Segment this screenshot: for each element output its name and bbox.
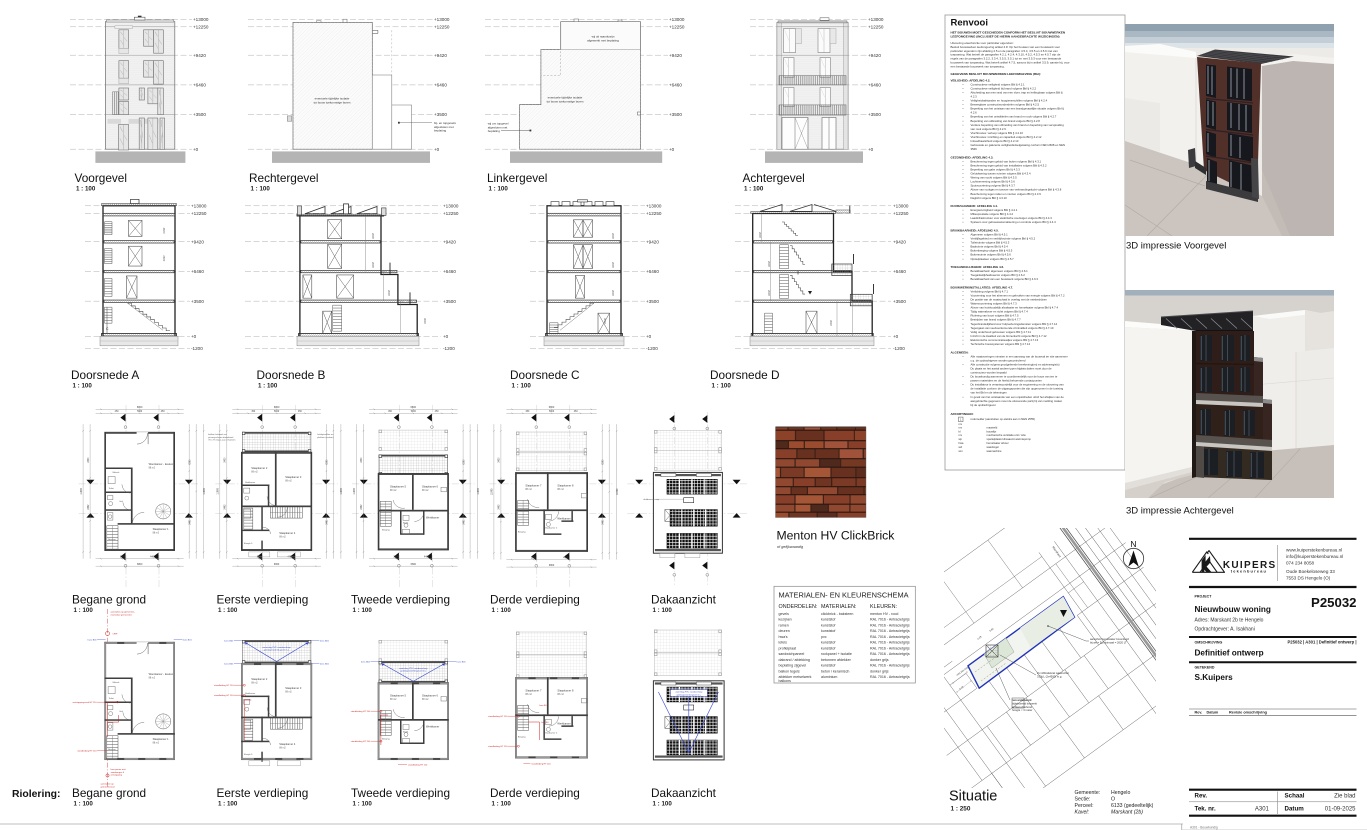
svg-text:Toilet: Toilet (109, 697, 114, 700)
svg-text:3630: 3630 (603, 318, 607, 324)
svg-text:PROJECT: PROJECT (1195, 595, 1213, 599)
svg-text:waterslag PVC noodoverloop: waterslag PVC noodoverloop (399, 667, 428, 670)
svg-text:Tek. nr.: Tek. nr. (1195, 805, 1216, 812)
svg-text:+6460: +6460 (443, 269, 456, 274)
svg-text:ALGEMEEN:: ALGEMEEN: (951, 350, 969, 354)
svg-text:A301: A301 (1255, 806, 1270, 812)
svg-text:Slaapkamer 4: Slaapkamer 4 (279, 531, 296, 535)
svg-text:+13000: +13000 (868, 17, 884, 22)
svg-text:profielplaat: profielplaat (779, 646, 797, 650)
svg-text:Slaapkamer 7: Slaapkamer 7 (525, 688, 542, 692)
svg-text:RAL 7016 - Antracietgrijs: RAL 7016 - Antracietgrijs (870, 664, 910, 668)
svg-text:2600: 2600 (767, 290, 771, 296)
svg-text:Begane grond: Begane grond (72, 593, 146, 607)
svg-text:Slaapkamer 3: Slaapkamer 3 (285, 475, 302, 479)
svg-text:88 m2: 88 m2 (557, 694, 564, 696)
svg-text:+9420: +9420 (191, 239, 204, 244)
svg-text:88 m2: 88 m2 (153, 533, 160, 535)
svg-text:6800: 6800 (411, 563, 417, 566)
svg-text:2462: 2462 (88, 504, 90, 510)
svg-text:1 : 100: 1 : 100 (353, 801, 373, 808)
svg-text:Tweede verdieping: Tweede verdieping (351, 593, 450, 607)
svg-text:-1200: -1200 (646, 346, 658, 351)
svg-text:spartelplaats klimaaunit warmt: spartelplaats klimaaunit warmtepomp (987, 437, 1032, 441)
svg-text:-1200: -1200 (191, 346, 203, 351)
svg-text:1 : 100: 1 : 100 (251, 186, 271, 193)
svg-text:bijbehorend bouwerk: bijbehorend bouwerk (1012, 701, 1038, 705)
svg-text:+0: +0 (669, 147, 675, 152)
svg-text:•: • (963, 383, 964, 387)
svg-text:Kavel:: Kavel: (1075, 810, 1090, 816)
svg-text:aansluiten op gemeente-: aansluiten op gemeente- (111, 611, 135, 614)
svg-text:+3500: +3500 (868, 112, 881, 117)
svg-text:hwa 80: hwa 80 (541, 722, 549, 724)
svg-text:Berging: Berging (518, 735, 526, 738)
svg-text:+9420: +9420 (193, 53, 206, 58)
svg-text:Eerste verdieping: Eerste verdieping (217, 593, 309, 607)
svg-text:+9420: +9420 (646, 239, 659, 244)
svg-text:+0: +0 (868, 147, 874, 152)
svg-text:Gemeente:: Gemeente: (1075, 790, 1101, 796)
svg-text:ontstopping: ontstopping (111, 774, 123, 777)
svg-text:2050: 2050 (531, 557, 537, 559)
svg-text:•: • (963, 220, 964, 224)
svg-text:2430: 2430 (225, 457, 227, 463)
svg-text:Technische bouwsystemen volgen: Technische bouwsystemen volgens Bbl § 4.… (971, 342, 1031, 346)
svg-text:Badk.: Badk. (403, 732, 409, 734)
svg-text:KLEUREN:: KLEUREN: (870, 604, 897, 610)
svg-text:standleiding HT 110: standleiding HT 110 (351, 710, 371, 713)
svg-text:6133 (gedeeltelijk): 6133 (gedeeltelijk) (1111, 803, 1154, 809)
svg-text:•: • (963, 123, 964, 127)
svg-text:6800: 6800 (274, 563, 280, 566)
svg-text:88 m2: 88 m2 (557, 489, 564, 491)
svg-text:balkons: balkons (779, 679, 792, 683)
svg-text:rookmelder (aansluiten op elek: rookmelder (aansluiten op elektra aan in… (971, 417, 1036, 421)
svg-text:+12250: +12250 (443, 211, 459, 216)
svg-text:2600: 2600 (162, 228, 166, 234)
svg-text:1 : 100: 1 : 100 (492, 607, 512, 614)
svg-text:5900: 5900 (411, 411, 417, 413)
svg-text:clickbrick - baksteen: clickbrick - baksteen (821, 612, 853, 616)
svg-text:Dakaanzicht: Dakaanzicht (651, 593, 717, 607)
svg-text:hwa 80: hwa 80 (539, 705, 547, 707)
svg-text:beton / keramisch: beton / keramisch (821, 669, 849, 673)
svg-text:Werkkamer: Werkkamer (426, 725, 439, 729)
svg-text:sandwichpaneel: sandwichpaneel (779, 652, 805, 656)
svg-text:AFKORTINGEN:: AFKORTINGEN: (951, 412, 974, 416)
svg-text:+6460: +6460 (893, 269, 906, 274)
svg-text:+3500: +3500 (669, 112, 682, 117)
svg-text:2430: 2430 (361, 457, 363, 463)
svg-text:2462: 2462 (361, 504, 363, 510)
svg-text:LEEFOMGEVING (INCLUSIEF DE HIE: LEEFOMGEVING (INCLUSIEF DE HIERIN AANGEB… (951, 35, 1060, 39)
svg-text:ORP: ORP (113, 634, 118, 636)
svg-text:Marskant (2b): Marskant (2b) (1111, 810, 1143, 816)
svg-text:4400: 4400 (424, 556, 430, 558)
svg-text:wasmachine: wasmachine (987, 449, 1002, 453)
svg-text:Woonkamer - keuken: Woonkamer - keuken (149, 462, 174, 466)
svg-text:6800: 6800 (549, 564, 555, 567)
svg-text:5900: 5900 (274, 411, 280, 413)
svg-text:hoogte < 3 meter: hoogte < 3 meter (1012, 708, 1032, 712)
svg-text:•: • (963, 395, 964, 399)
svg-text:6800: 6800 (137, 406, 143, 409)
svg-text:•: • (963, 362, 964, 366)
svg-text:donker grijs: donker grijs (870, 669, 889, 673)
svg-text:2462: 2462 (225, 504, 227, 510)
svg-text:1 : 100: 1 : 100 (218, 607, 238, 614)
svg-text:RAL 7016 - Antracietgrijs: RAL 7016 - Antracietgrijs (870, 652, 910, 656)
svg-text:•: • (963, 277, 964, 281)
svg-text:geintegreerd 50 gevel m.v.: geintegreerd 50 gevel m.v. (400, 670, 426, 673)
svg-text:2600: 2600 (387, 290, 391, 296)
svg-text:2461: 2461 (190, 519, 192, 525)
svg-text:waterslag PVC noodoverloop: waterslag PVC noodoverloop (262, 646, 291, 649)
svg-text:Doorsnede C: Doorsnede C (510, 368, 580, 382)
svg-text:Slaapkamer 1: Slaapkamer 1 (153, 737, 170, 741)
svg-text:11990: 11990 (491, 488, 494, 495)
svg-text:RAL 7016 - Antracietgrijs: RAL 7016 - Antracietgrijs (870, 618, 910, 622)
svg-text:S.Kuipers: S.Kuipers (1195, 673, 1234, 682)
svg-text:6800: 6800 (137, 563, 143, 566)
svg-text:riool (door gemeente): riool (door gemeente) (111, 613, 132, 616)
svg-text:+3500: +3500 (893, 299, 906, 304)
svg-text:standleiding HT 110: standleiding HT 110 (351, 740, 371, 743)
svg-text:+12250: +12250 (893, 211, 909, 216)
svg-text:Menton HV ClickBrick: Menton HV ClickBrick (777, 529, 896, 543)
svg-text:wd: wd (959, 445, 963, 449)
svg-text:88 m2: 88 m2 (390, 490, 397, 492)
svg-text:88 m2: 88 m2 (251, 472, 258, 474)
svg-text:Zie blad: Zie blad (1334, 793, 1355, 799)
svg-text:Slaapkamer 1: Slaapkamer 1 (153, 527, 170, 531)
svg-text:zandvanger &: zandvanger & (111, 771, 125, 774)
svg-text:Rev.: Rev. (1195, 711, 1203, 715)
svg-text:Derde verdieping: Derde verdieping (490, 786, 580, 800)
svg-text:hwa: hwa (959, 441, 964, 445)
svg-text:kves B01: kves B01 (320, 664, 330, 666)
svg-text:RAL 7016 - Antracietgrijs: RAL 7016 - Antracietgrijs (870, 635, 910, 639)
svg-text:standleiding HT 110: standleiding HT 110 (408, 764, 428, 767)
svg-text:1 : 100: 1 : 100 (744, 186, 764, 193)
svg-text:88 m2: 88 m2 (422, 699, 429, 701)
svg-text:Definitief ontwerp: Definitief ontwerp (1195, 649, 1264, 658)
svg-text:OMSCHRIJVING: OMSCHRIJVING (1195, 641, 1223, 645)
svg-text:ONDERDELEN:: ONDERDELEN: (779, 604, 818, 610)
svg-text:+6460: +6460 (868, 83, 881, 88)
svg-text:Slaapkamer 6: Slaapkamer 6 (422, 484, 439, 488)
svg-text:1 : 100: 1 : 100 (76, 186, 96, 193)
svg-text:tot bouw toekomstige buren: tot bouw toekomstige buren (547, 99, 584, 103)
svg-text:+3500: +3500 (646, 299, 659, 304)
svg-text:•: • (963, 342, 964, 346)
svg-text:Adres: Marskant 2b te Hengelo: Adres: Marskant 2b te Hengelo (1195, 618, 1264, 624)
svg-text:+12250: +12250 (646, 211, 662, 216)
svg-text:+9420: +9420 (434, 53, 447, 58)
svg-text:6260: 6260 (463, 459, 465, 465)
svg-text:11990: 11990 (616, 488, 619, 495)
svg-text:Berging: Berging (382, 528, 390, 531)
svg-text:4400: 4400 (150, 556, 156, 558)
svg-text:•: • (963, 90, 964, 94)
svg-text:Hal: Hal (120, 711, 124, 713)
svg-text:1 : 100: 1 : 100 (353, 607, 373, 614)
svg-text:11990: 11990 (80, 488, 83, 495)
svg-text:wasdroger: wasdroger (987, 445, 1000, 449)
svg-text:Berging: Berging (108, 538, 116, 541)
svg-text:+6460: +6460 (434, 83, 447, 88)
svg-text:88 m2: 88 m2 (279, 537, 286, 539)
svg-text:7553 DS Hengelo (O): 7553 DS Hengelo (O) (1286, 575, 1331, 580)
svg-text:1 : 100: 1 : 100 (492, 801, 512, 808)
svg-text:Renvooi: Renvooi (951, 18, 988, 29)
svg-text:11990: 11990 (477, 488, 480, 495)
svg-text:beplating zijgevel: beplating zijgevel (779, 664, 807, 668)
svg-text:aluminium: aluminium (821, 675, 837, 679)
svg-text:Schaal: Schaal (1285, 792, 1305, 799)
svg-text:kves B01: kves B01 (224, 664, 234, 666)
svg-text:6800: 6800 (411, 406, 417, 409)
svg-text:3630: 3630 (829, 320, 833, 326)
svg-text:Opstelplaatsen volgens Bbl § 4: Opstelplaatsen volgens Bbl § 4.5.7 (971, 257, 1015, 261)
svg-text:Tweede verdieping: Tweede verdieping (351, 786, 450, 800)
svg-text:+13000: +13000 (443, 203, 459, 208)
svg-text:standleiding HT 110: standleiding HT 110 (77, 750, 97, 753)
svg-text:+9420: +9420 (868, 53, 881, 58)
svg-text:6800: 6800 (274, 406, 280, 409)
svg-text:ontstoppingsstuk HT 110: ontstoppingsstuk HT 110 (73, 701, 98, 704)
svg-text:2600: 2600 (611, 290, 615, 296)
svg-text:3D impressie Voorgevel: 3D impressie Voorgevel (1126, 241, 1226, 252)
svg-text:Datum: Datum (1207, 711, 1219, 715)
svg-text:Doorsnede B: Doorsnede B (257, 368, 326, 382)
svg-text:Nieuwbouw woning: Nieuwbouw woning (1195, 605, 1271, 614)
svg-text:A301 - Bouwkundig: A301 - Bouwkundig (1190, 825, 1218, 829)
svg-text:+0: +0 (191, 334, 197, 339)
svg-text:GEGEVENS BESLUIT BOUWWERKEN LE: GEGEVENS BESLUIT BOUWWERKEN LEEFOMGEVING… (951, 72, 1042, 76)
svg-text:Systeem voor gebouwautomatiser: Systeem voor gebouwautomatisering en con… (971, 220, 1057, 224)
svg-text:+0: +0 (193, 147, 199, 152)
svg-text:O: O (1111, 797, 1115, 803)
svg-text:balkon hekwerk en: balkon hekwerk en (208, 433, 227, 436)
svg-text:+12250: +12250 (669, 24, 685, 29)
svg-text:kunststof: kunststof (821, 629, 835, 633)
svg-text:Riolering:: Riolering: (12, 789, 61, 800)
svg-text:1 : 100: 1 : 100 (712, 383, 732, 390)
svg-text:2600: 2600 (767, 261, 771, 267)
svg-text:kozijnen: kozijnen (779, 618, 792, 622)
svg-text:N: N (1130, 539, 1136, 549)
svg-text:standleiding HT 110: standleiding HT 110 (488, 745, 508, 748)
svg-text:+3500: +3500 (193, 112, 206, 117)
svg-text:2600: 2600 (162, 255, 166, 261)
svg-text:Badkamer: Badkamer (245, 481, 255, 484)
svg-text:Berging: Berging (108, 748, 116, 751)
svg-text:Begane grond: Begane grond (72, 786, 146, 800)
svg-text:6800: 6800 (549, 406, 555, 409)
svg-text:1 : 100: 1 : 100 (74, 801, 94, 808)
svg-text:Slaapkamer 2: Slaapkamer 2 (251, 466, 268, 470)
svg-text:achteruchtehood: achteruchtehood (1012, 705, 1033, 709)
svg-text:Werkkamer: Werkkamer (426, 515, 439, 519)
svg-text:4400: 4400 (563, 557, 569, 559)
svg-text:of gelijkwaardig: of gelijkwaardig (777, 545, 804, 549)
svg-text:3D impressie Achtergevel: 3D impressie Achtergevel (1126, 506, 1234, 517)
svg-text:menton HV - rood: menton HV - rood (870, 612, 898, 616)
svg-text:P25032: P25032 (1311, 595, 1356, 610)
svg-text:6260: 6260 (327, 459, 329, 465)
svg-text:pvc: pvc (821, 635, 827, 639)
svg-text:standleiding HT 110: standleiding HT 110 (488, 715, 508, 718)
svg-text:Dakaanzicht: Dakaanzicht (651, 786, 717, 800)
svg-text:1 : 100: 1 : 100 (653, 801, 673, 808)
svg-text:Slaapkamer 5: Slaapkamer 5 (390, 484, 407, 488)
svg-text:Revisie omschrijving: Revisie omschrijving (1229, 711, 1268, 715)
svg-text:88 m2: 88 m2 (285, 481, 292, 483)
svg-text:deuren: deuren (779, 629, 790, 633)
svg-text:+12250: +12250 (191, 211, 207, 216)
svg-text:2600: 2600 (758, 232, 762, 238)
svg-text:•: • (963, 354, 964, 358)
svg-text:Hal: Hal (120, 501, 124, 503)
svg-text:88 m2: 88 m2 (149, 468, 156, 470)
svg-text:Meterk.: Meterk. (113, 471, 121, 474)
svg-text:Achtergevel: Achtergevel (743, 171, 805, 185)
svg-text:Slaapkamer 4: Slaapkamer 4 (279, 742, 296, 746)
svg-text:kunststof: kunststof (821, 618, 835, 622)
svg-text:88 m2: 88 m2 (390, 699, 397, 701)
svg-text:2430: 2430 (88, 457, 90, 463)
svg-text:beplating: beplating (434, 128, 447, 132)
svg-text:11990: 11990 (340, 488, 343, 495)
svg-text:88 m2: 88 m2 (153, 743, 160, 745)
svg-text:balkon tegels: balkon tegels (779, 669, 800, 673)
svg-text:+13000: +13000 (193, 17, 209, 22)
svg-text:betonnen afdekker: betonnen afdekker (821, 658, 852, 662)
svg-text:5900: 5900 (137, 411, 143, 413)
svg-text:standleiding HT 110: standleiding HT 110 (531, 763, 551, 766)
svg-text:5900: 5900 (549, 411, 555, 413)
svg-text:Gebouwde en galerente veilighe: Gebouwde en galerente veiligheidsdoelgel… (971, 143, 1066, 147)
svg-text:+13000: +13000 (669, 17, 685, 22)
svg-text:2050: 2050 (393, 556, 399, 558)
svg-text:www.kuiperstekenbureau.nl: www.kuiperstekenbureau.nl (1286, 548, 1342, 553)
svg-text:•: • (963, 143, 964, 147)
svg-text:Slaapk.5: Slaapk.5 (244, 543, 253, 545)
svg-text:maaiveld: maaiveld (987, 425, 998, 429)
svg-text:3630: 3630 (423, 318, 427, 324)
svg-text:Slaapk.5: Slaapk.5 (244, 754, 253, 756)
svg-text:RAL 7016 - Antracietgrijs: RAL 7016 - Antracietgrijs (870, 641, 910, 645)
svg-text:Toilet: Toilet (109, 487, 114, 490)
svg-text:+6460: +6460 (193, 83, 206, 88)
svg-text:+13000: +13000 (434, 17, 450, 22)
svg-text:kunststof: kunststof (821, 664, 835, 668)
svg-text:+9420: +9420 (893, 239, 906, 244)
svg-text:88 m2: 88 m2 (279, 748, 286, 750)
svg-text:01-09-2025: 01-09-2025 (1325, 806, 1356, 812)
svg-text:Slaapkamer 7: Slaapkamer 7 (525, 483, 542, 487)
svg-text:Berging: Berging (518, 530, 526, 533)
svg-text:+6460: +6460 (191, 269, 204, 274)
svg-text:+3500: +3500 (434, 112, 447, 117)
svg-text:standleiding HT 110: standleiding HT 110 (214, 694, 234, 697)
svg-text:RAL 7016 - Antracietgrijs: RAL 7016 - Antracietgrijs (870, 623, 910, 627)
svg-text:Voorgevel: Voorgevel (75, 171, 127, 185)
svg-text:hwa poeier met: hwa poeier met (111, 768, 126, 771)
svg-text:Doorsnede A: Doorsnede A (71, 368, 139, 382)
svg-text:privacyscherm draadstaal: privacyscherm draadstaal (208, 436, 233, 439)
svg-text:6260: 6260 (603, 459, 605, 465)
svg-text:Doorsnede D: Doorsnede D (710, 368, 780, 382)
svg-text:kves B01: kves B01 (224, 641, 234, 643)
svg-text:dakdoorvoer wp: dakdoorvoer wp (643, 498, 659, 501)
svg-text:donker grijs: donker grijs (870, 658, 889, 662)
svg-text:+9420: +9420 (443, 239, 456, 244)
svg-text:hwa's: hwa's (779, 635, 788, 639)
svg-text:Beperking van het ontstaan van: Beperking van het ontstaan van een brand… (971, 107, 1065, 111)
svg-text:RAL 7016 - Antracietgrijs: RAL 7016 - Antracietgrijs (870, 629, 910, 633)
svg-text:wp: wp (959, 438, 963, 441)
svg-text:Afscheiding aan een rand van e: Afscheiding aan een rand van een vloer, … (971, 90, 1063, 94)
svg-text:2461: 2461 (463, 519, 465, 525)
svg-text:afgewerkt met beplating: afgewerkt met beplating (587, 38, 619, 42)
svg-text:Slaapkamer 6: Slaapkamer 6 (422, 694, 439, 698)
svg-text:MATERIALEN- EN KLEURENSCHEMA: MATERIALEN- EN KLEURENSCHEMA (779, 590, 909, 599)
svg-text:aanschot hemelwater bovenlegd: aanschot hemelwater bovenlegd (1090, 637, 1129, 641)
svg-text:•: • (963, 196, 964, 200)
svg-text:kves B01: kves B01 (183, 640, 193, 642)
svg-text:een bestaande bouwwerk van toe: een bestaande bouwwerk van toepassing. (951, 64, 1005, 68)
svg-text:Daglicht volgens Bbl § 4.3.10: Daglicht volgens Bbl § 4.3.10 (971, 196, 1008, 200)
svg-text:geintegreerd 50 gevel m.v.: geintegreerd 50 gevel m.v. (677, 693, 702, 696)
svg-text:+3500: +3500 (443, 299, 456, 304)
svg-text:Woonkamer - keuken: Woonkamer - keuken (149, 672, 174, 676)
svg-text:bouwlijn: bouwlijn (987, 429, 997, 433)
svg-text:+3500: +3500 (191, 299, 204, 304)
svg-text:1 : 100: 1 : 100 (218, 801, 238, 808)
svg-text:kves B01: kves B01 (320, 641, 330, 643)
svg-text:Slaapkamer 2: Slaapkamer 2 (251, 677, 268, 681)
svg-text:Werkkamer: Werkkamer (557, 721, 570, 725)
svg-text:2050: 2050 (120, 556, 126, 558)
svg-text:RAL 7016 - Antracietgrijs: RAL 7016 - Antracietgrijs (870, 646, 910, 650)
svg-text:2461: 2461 (327, 519, 329, 525)
svg-text:Linkergevel: Linkergevel (487, 171, 547, 185)
svg-text:Situatie: Situatie (949, 789, 997, 805)
svg-text:88 m2: 88 m2 (525, 489, 532, 491)
svg-text:•: • (963, 375, 964, 379)
svg-text:-1200: -1200 (893, 346, 905, 351)
svg-text:6260: 6260 (190, 459, 192, 465)
svg-text:1 : 100: 1 : 100 (653, 607, 673, 614)
svg-text:kunststof: kunststof (821, 646, 835, 650)
svg-text:1 : 100: 1 : 100 (489, 186, 509, 193)
svg-text:kves B01: kves B01 (88, 640, 98, 642)
svg-text:bij wtl = 3jj minimaal = 2620: bij wtl = 3jj minimaal = 2620 LT (1090, 640, 1127, 644)
svg-text:dakrand / afdekking: dakrand / afdekking (779, 658, 810, 662)
svg-text:ramen: ramen (779, 623, 789, 627)
svg-text:geintegreerd 50 gevel m.v.: geintegreerd 50 gevel m.v. (264, 649, 290, 652)
svg-text:RAL 7016 - Antracietgrijs: RAL 7016 - Antracietgrijs (870, 675, 910, 679)
svg-text:renovatiebeurd: renovatiebeurd (1012, 698, 1032, 702)
svg-text:Slaapkamer 3: Slaapkamer 3 (285, 686, 302, 690)
svg-text:2600: 2600 (611, 262, 615, 268)
svg-text:mechanische ventilatie unit /: mechanische ventilatie unit / wtw (987, 433, 1026, 437)
svg-text:88 m2: 88 m2 (285, 692, 292, 694)
svg-text:GETEKEND: GETEKEND (1195, 666, 1215, 670)
